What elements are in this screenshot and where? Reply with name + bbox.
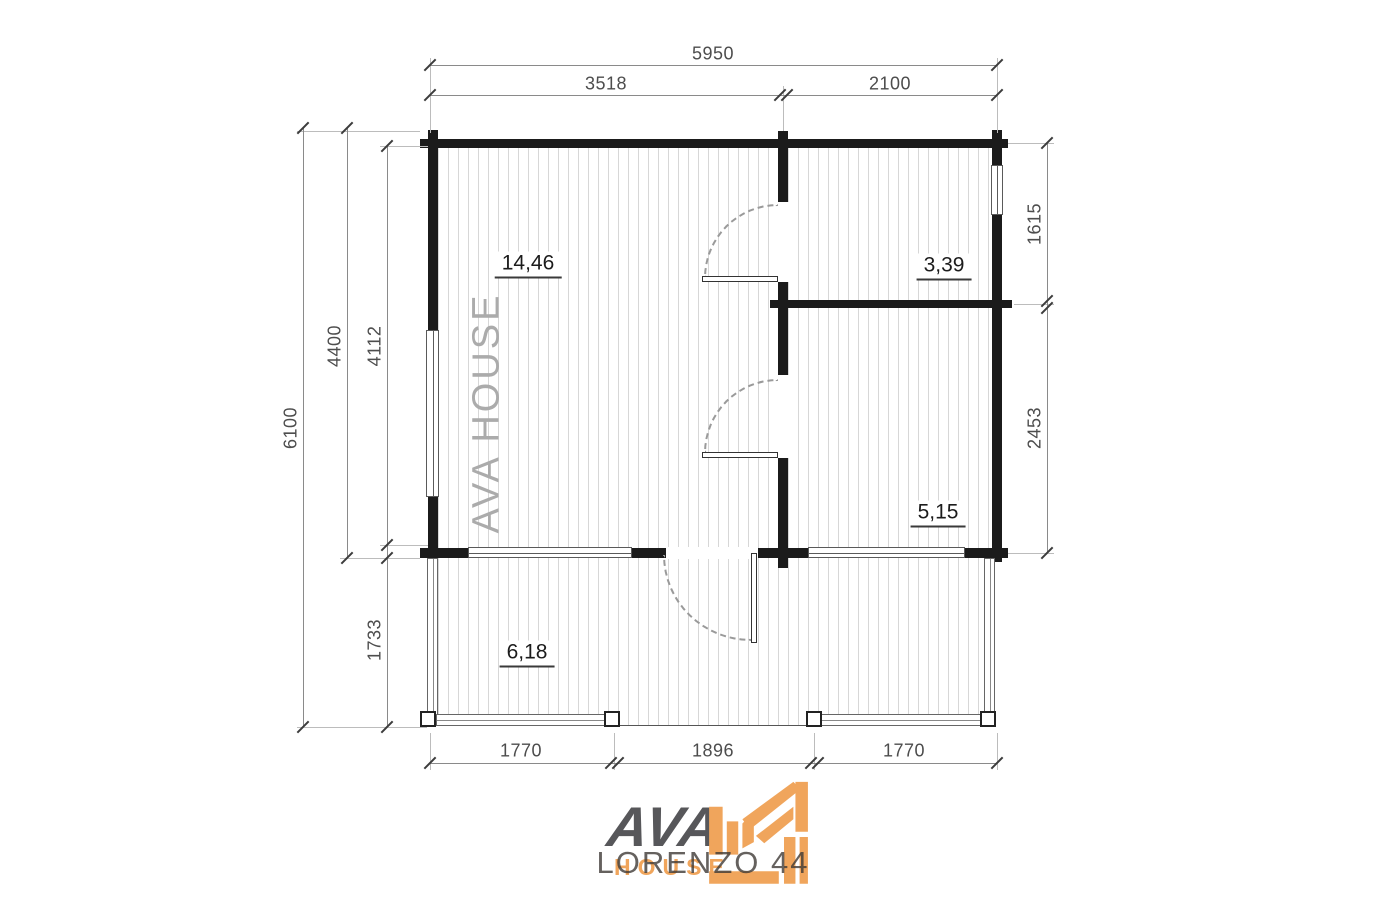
railing-post [806,711,822,727]
watermark-text: AVA HOUSE [466,293,509,534]
dim-label-right-rail: 1770 [883,741,925,762]
dim-line-left-6100 [303,128,304,727]
dim-label-interior-depth: 4112 [365,326,386,367]
logo: AVA HOUSE LORENZO 44 [588,775,823,903]
dim-line-right [1047,143,1048,553]
window-front-left [468,547,632,558]
dim-label-terrace-depth: 1733 [365,619,386,661]
railing-left [427,558,438,716]
logo-model-text: LORENZO 44 [594,845,812,881]
dim-label-left-span: 3518 [585,74,627,95]
dim-label-right-span: 2100 [869,74,911,95]
interior-floor [438,148,992,548]
wall-top [420,139,1008,148]
partition-horizontal [770,300,1012,308]
floor-plan: AVA HOUSE [0,0,1400,905]
dim-line-top-total [430,65,997,66]
railing-post [980,711,996,727]
dim-label-left-rail: 1770 [500,741,542,762]
extension-line [297,131,420,132]
railing-bottom-right [820,714,986,726]
dim-label-cabin-depth: 4400 [325,325,346,367]
railing-post [420,711,436,727]
dim-line-left-4112-1733 [387,146,388,727]
door-leaf-front [751,553,757,643]
extension-line [430,733,431,770]
room-area-main: 14,46 [495,252,562,279]
window-right-wall [991,165,1003,215]
dim-label-opening: 1896 [692,741,734,762]
dim-label-upper-room: 1615 [1025,203,1046,245]
extension-line [297,727,427,728]
partition-vertical [778,131,788,568]
window-front-right [808,547,965,558]
railing-bottom-left [436,714,608,726]
railing-right [984,558,995,716]
dim-line-top-spans [430,95,997,96]
dim-line-left-4400 [347,128,348,558]
room-area-terrace: 6,18 [500,641,555,668]
extension-line [340,558,420,559]
room-area-upper-right: 3,39 [917,254,972,281]
dim-line-bottom [430,763,997,764]
dim-label-total-depth: 6100 [281,407,302,449]
door-leaf-lower [702,452,778,458]
window-left-wall [426,330,439,497]
extension-line [997,733,998,770]
deck-edge [618,725,810,726]
door-leaf-upper [702,276,778,282]
room-area-lower-right: 5,15 [911,501,966,528]
dim-label-lower-room: 2453 [1025,407,1046,449]
dim-label-total-width: 5950 [692,44,734,65]
railing-post [604,711,620,727]
